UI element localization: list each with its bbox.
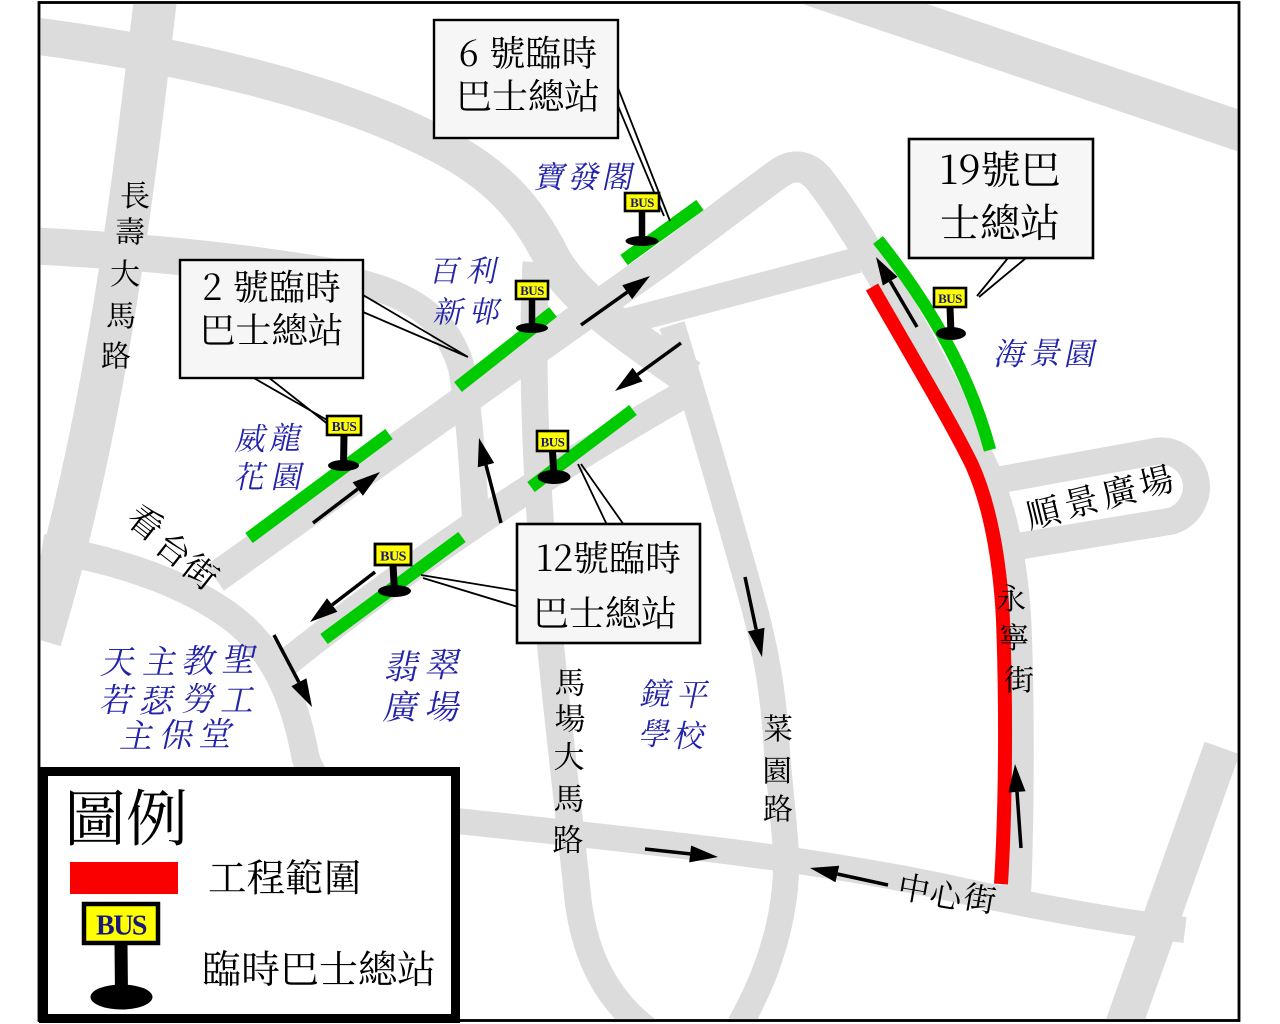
svg-text:BUS: BUS xyxy=(630,195,654,210)
svg-text:BUS: BUS xyxy=(938,291,962,306)
svg-text:BUS: BUS xyxy=(520,283,544,298)
svg-text:BUS: BUS xyxy=(332,419,357,434)
svg-text:BUS: BUS xyxy=(96,910,147,941)
svg-text:BUS: BUS xyxy=(541,435,565,450)
svg-text:BUS: BUS xyxy=(380,549,406,564)
